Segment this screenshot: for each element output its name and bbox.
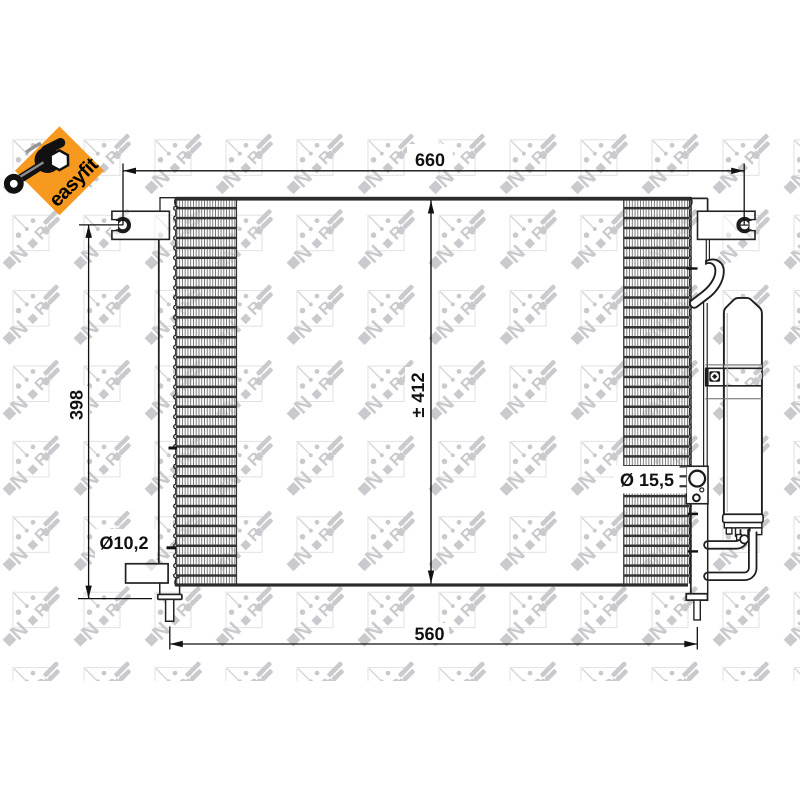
svg-text:660: 660 xyxy=(415,150,445,170)
svg-text:± 412: ± 412 xyxy=(408,373,428,418)
svg-text:Ø 15,5: Ø 15,5 xyxy=(620,470,674,490)
svg-text:560: 560 xyxy=(414,624,444,644)
svg-text:398: 398 xyxy=(67,390,87,420)
svg-text:Ø10,2: Ø10,2 xyxy=(100,533,149,553)
